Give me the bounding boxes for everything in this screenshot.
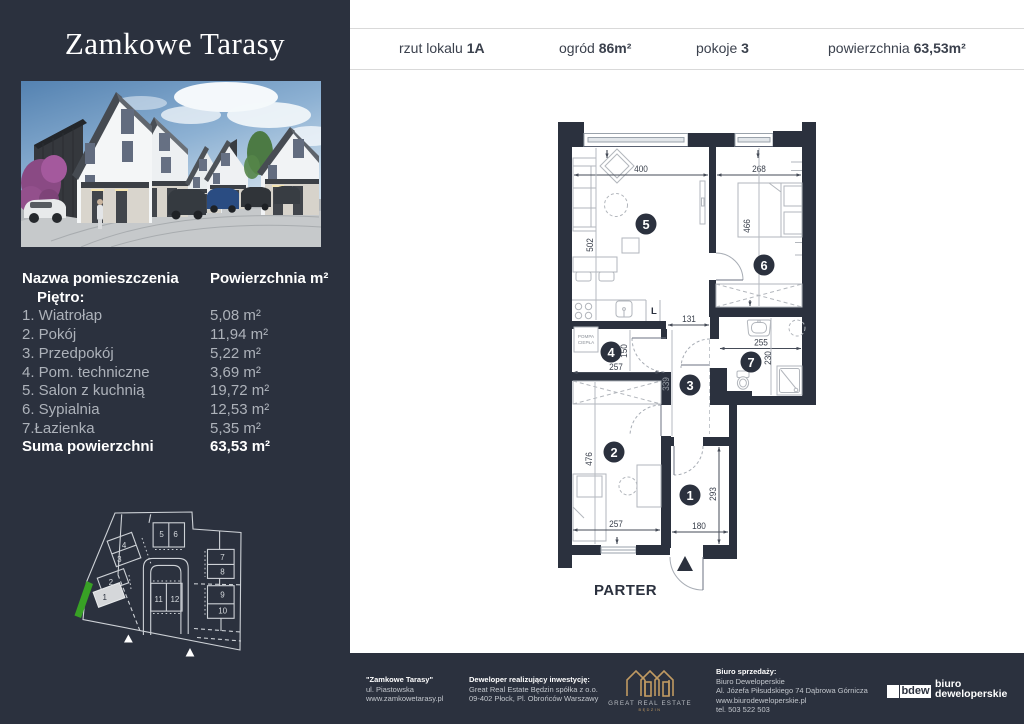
svg-text:1: 1 (102, 593, 107, 602)
svg-text:476: 476 (583, 452, 594, 466)
svg-text:5: 5 (642, 217, 649, 232)
svg-text:180: 180 (692, 520, 706, 531)
svg-text:CIEPŁA: CIEPŁA (578, 340, 595, 345)
svg-text:9: 9 (220, 591, 225, 600)
svg-text:400: 400 (634, 163, 648, 174)
svg-text:4: 4 (607, 345, 615, 360)
svg-text:257: 257 (609, 361, 623, 372)
svg-text:3: 3 (686, 378, 693, 393)
svg-text:293: 293 (707, 487, 718, 501)
svg-text:GREAT REAL ESTATE: GREAT REAL ESTATE (608, 700, 692, 707)
svg-text:1: 1 (686, 488, 693, 503)
svg-text:L: L (651, 306, 657, 317)
svg-text:131: 131 (682, 313, 696, 324)
svg-text:230: 230 (762, 351, 773, 365)
svg-text:502: 502 (584, 238, 595, 252)
svg-text:466: 466 (741, 219, 752, 233)
svg-text:3: 3 (117, 555, 122, 564)
svg-text:12: 12 (170, 595, 179, 604)
svg-text:6: 6 (760, 258, 767, 273)
svg-text:5: 5 (159, 530, 164, 539)
svg-text:339: 339 (660, 377, 671, 391)
svg-text:257: 257 (609, 518, 623, 529)
svg-text:10: 10 (218, 606, 227, 615)
svg-text:8: 8 (220, 568, 225, 577)
svg-text:POMPA: POMPA (578, 334, 595, 339)
svg-text:6: 6 (173, 530, 178, 539)
svg-text:2: 2 (109, 578, 114, 587)
svg-text:7: 7 (747, 355, 754, 370)
svg-text:BĘDZIN: BĘDZIN (639, 708, 662, 712)
svg-text:255: 255 (754, 337, 768, 348)
svg-text:4: 4 (122, 541, 127, 550)
svg-text:2: 2 (610, 445, 617, 460)
svg-text:PARTER: PARTER (594, 582, 657, 599)
svg-text:7: 7 (220, 553, 225, 562)
svg-text:11: 11 (155, 595, 164, 604)
